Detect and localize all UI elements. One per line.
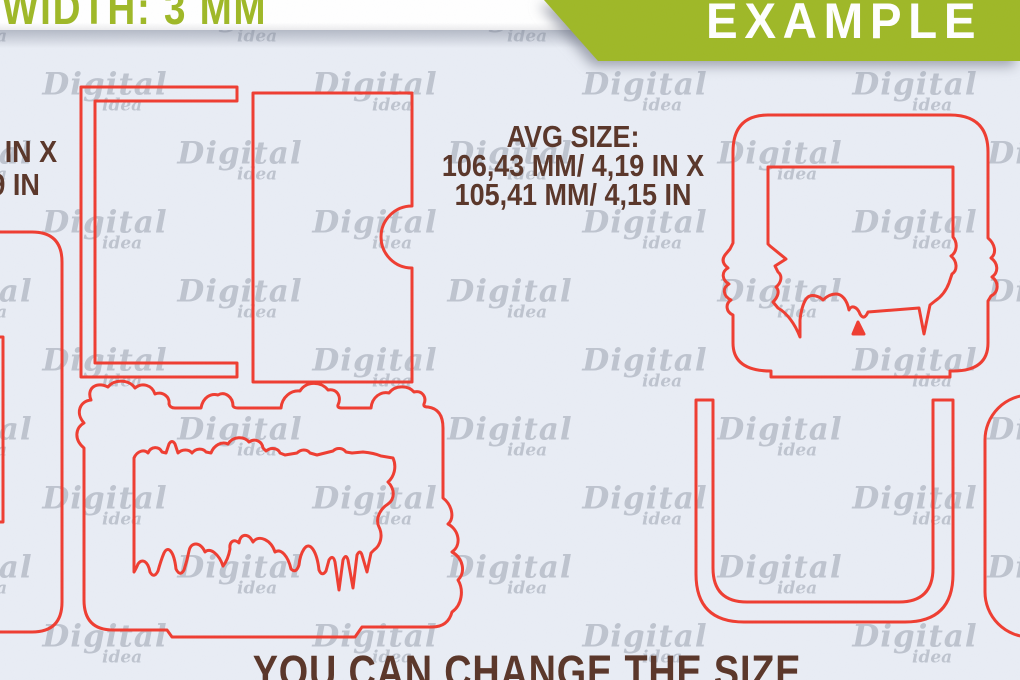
stroke-width-label: WIDTH: 3 MM — [2, 0, 267, 31]
left-size-annotation-line1: 7 IN X — [0, 136, 57, 167]
avg-size-annotation: AVG SIZE: 106,43 MM/ 4,19 IN X 105,41 MM… — [429, 122, 716, 209]
avg-size-title: AVG SIZE: — [429, 122, 716, 151]
profile-frame-triangle-accent — [853, 322, 864, 334]
product-preview-image: DigitalideaDigitalideaDigitalideaDigital… — [0, 0, 1020, 680]
avg-size-line3: 105,41 MM/ 4,15 IN — [429, 180, 716, 209]
template-outlines — [0, 0, 1020, 680]
rounded-panel-right-outline — [985, 395, 1020, 637]
partial-frame-left-inner-edge — [0, 337, 3, 522]
cloud-grass-frame-window — [134, 438, 395, 590]
avg-size-line2: 106,43 MM/ 4,19 IN X — [429, 151, 716, 180]
left-size-annotation-line2: 9 IN — [0, 169, 40, 200]
pocket-card-front-notch-outline — [253, 93, 412, 382]
pocket-card-back-outline — [81, 87, 237, 377]
footer-note: YOU CAN CHANGE THE SIZE — [253, 649, 802, 680]
partial-frame-left-outline — [0, 232, 62, 632]
profile-silhouette-frame-window — [768, 167, 956, 337]
stand-u-channel-outline — [696, 400, 953, 622]
